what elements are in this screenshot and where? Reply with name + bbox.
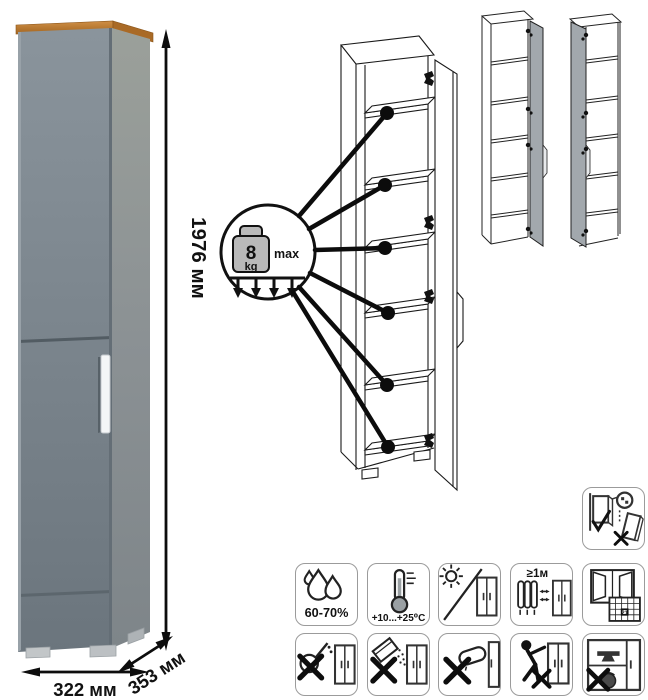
no-overloading-icon — [582, 633, 645, 696]
calendar-icon: 21 — [609, 598, 640, 621]
magnifier-icon — [617, 493, 632, 508]
grey-door-left — [571, 22, 586, 247]
humidity-label: 60-70% — [305, 606, 349, 620]
height-label: 1976 мм — [187, 217, 210, 299]
heat-source-distance-icon: ≥1м — [510, 563, 573, 626]
width-label: 322 мм — [53, 679, 116, 700]
product-diagram-page: 1976 мм 322 мм 353 мм — [0, 0, 648, 700]
load-unit: kg — [245, 261, 258, 273]
door-variant-views — [470, 5, 648, 250]
shelf-callout-dots — [378, 106, 395, 454]
height-dimension: 1976 мм — [162, 29, 211, 651]
calendar-day: 21 — [622, 610, 628, 616]
ventilation-icon: 21 — [582, 563, 645, 626]
temperature-icon: +10...+25⁰C — [367, 563, 430, 626]
load-limit-badge: 8 kg max — [221, 205, 315, 299]
variant-door-left — [570, 14, 621, 247]
humidity-icon: 60-70% — [295, 563, 358, 626]
open-cabinet-diagram: 8 kg max — [210, 0, 480, 515]
radiator-icon — [518, 581, 537, 607]
hinges — [424, 71, 434, 448]
no-direct-sunlight-icon — [438, 563, 501, 626]
anchor-to-wall-icon — [582, 487, 645, 550]
main-cabinet-render: 1976 мм 322 мм 353 мм — [0, 0, 230, 700]
temperature-label: +10...+25⁰C — [372, 613, 426, 624]
sun-icon — [440, 565, 463, 588]
spacing-arrows — [539, 590, 549, 602]
no-abrasive-powders-icon — [367, 633, 430, 696]
load-qualifier: max — [274, 247, 299, 261]
no-aggressive-liquids-icon — [295, 633, 358, 696]
door-handle-profile — [457, 292, 463, 348]
depth-dimension: 353 мм — [117, 636, 189, 699]
cabinet-body — [18, 28, 150, 652]
shelves — [365, 97, 435, 455]
open-door — [435, 60, 463, 490]
grey-door-right — [530, 21, 543, 246]
variant-door-right — [482, 11, 547, 246]
door-handle — [98, 355, 110, 433]
no-wet-cloth-icon — [438, 633, 501, 696]
distance-label: ≥1м — [527, 567, 549, 580]
no-dragging-icon — [510, 633, 573, 696]
